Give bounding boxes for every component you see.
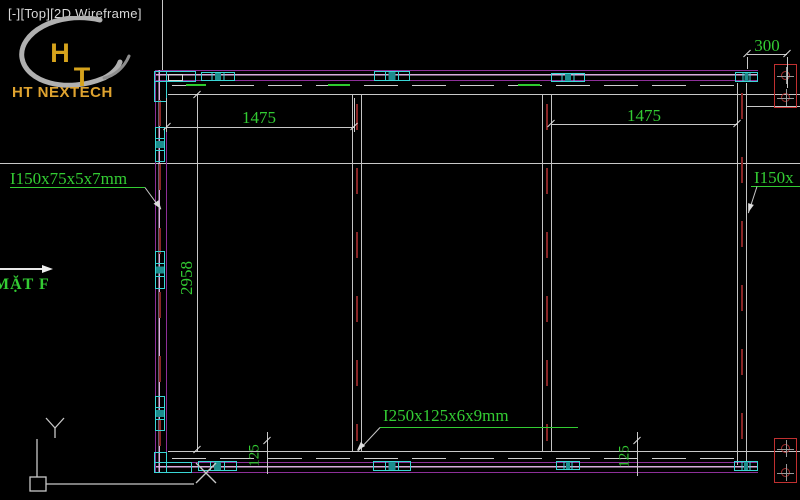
reference-line-mid[interactable] xyxy=(0,163,800,164)
right-column[interactable] xyxy=(737,83,747,465)
dimension-line xyxy=(197,95,198,451)
splice-plate-symbol[interactable] xyxy=(735,72,758,82)
dimension-text[interactable]: 1475 xyxy=(233,108,285,128)
weld-mark xyxy=(186,84,206,86)
dimension-line xyxy=(167,127,355,128)
bolt-hole-symbol xyxy=(781,71,790,80)
splice-plate-symbol[interactable] xyxy=(373,461,411,471)
dimension-text[interactable]: 125 xyxy=(617,435,634,479)
view-direction-arrow xyxy=(42,265,53,273)
dimension-text[interactable]: 2958 xyxy=(177,248,197,308)
splice-plate-symbol[interactable] xyxy=(734,461,758,471)
interior-column-1[interactable] xyxy=(352,94,362,451)
dimension-extension xyxy=(747,57,748,69)
bolt-hole-symbol xyxy=(781,444,790,453)
ucs-axis-icon[interactable] xyxy=(22,405,232,497)
dimension-line xyxy=(551,124,738,125)
label-underline xyxy=(380,427,578,428)
splice-plate-symbol[interactable] xyxy=(551,73,585,82)
bolt-hole-symbol xyxy=(781,93,790,102)
splice-plate-symbol[interactable] xyxy=(155,127,165,162)
label-underline xyxy=(10,187,145,188)
cad-viewport[interactable]: [-][Top][2D Wireframe] H T HT NEXTECH xyxy=(0,0,800,500)
interior-column-2[interactable] xyxy=(542,94,552,451)
extension-line-top xyxy=(162,0,163,72)
bolt-hole-symbol xyxy=(781,468,790,477)
logo-monogram-h: H xyxy=(50,38,70,68)
top-beam-centerline xyxy=(172,85,740,86)
splice-plate-symbol xyxy=(168,74,183,81)
leader-arrow-icon xyxy=(745,203,753,213)
company-name: HT NEXTECH xyxy=(12,84,140,101)
bottom-beam[interactable] xyxy=(155,462,758,473)
dimension-text[interactable]: 1475 xyxy=(618,106,670,126)
member-label[interactable]: I150x xyxy=(754,168,794,188)
view-marker-label: MẶT F xyxy=(0,276,50,294)
splice-plate-symbol[interactable] xyxy=(201,72,235,81)
member-label[interactable]: I150x75x5x7mm xyxy=(10,169,127,189)
view-direction-line xyxy=(0,268,44,270)
member-label[interactable]: I250x125x6x9mm xyxy=(383,406,509,426)
top-beam[interactable] xyxy=(155,70,758,81)
top-flange-line[interactable] xyxy=(168,94,800,95)
splice-plate-symbol[interactable] xyxy=(155,251,165,289)
dimension-line xyxy=(747,54,787,55)
label-underline xyxy=(751,186,800,187)
dimension-text[interactable]: 300 xyxy=(744,36,790,56)
weld-mark xyxy=(328,84,350,86)
splice-plate-symbol[interactable] xyxy=(556,461,580,470)
weld-mark xyxy=(518,84,540,86)
dimension-extension xyxy=(787,57,788,88)
splice-plate-symbol[interactable] xyxy=(374,71,410,81)
dimension-text[interactable]: 125 xyxy=(247,434,264,478)
